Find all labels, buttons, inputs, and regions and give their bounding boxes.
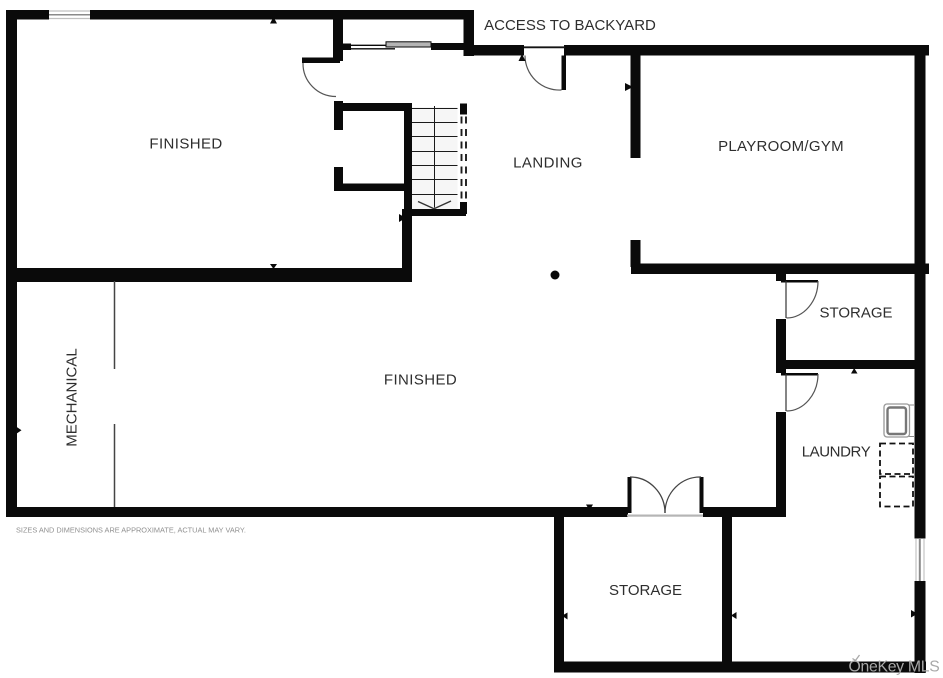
svg-text:ACCESS TO BACKYARD: ACCESS TO BACKYARD	[484, 17, 656, 34]
svg-text:STORAGE: STORAGE	[609, 582, 682, 599]
svg-text:FINISHED: FINISHED	[149, 136, 222, 153]
svg-text:OneKey MLS: OneKey MLS	[849, 659, 940, 676]
svg-text:PLAYROOM/GYM: PLAYROOM/GYM	[718, 138, 844, 155]
svg-text:LAUNDRY: LAUNDRY	[802, 444, 871, 461]
svg-text:SIZES AND DIMENSIONS ARE APPRO: SIZES AND DIMENSIONS ARE APPROXIMATE, AC…	[16, 526, 246, 535]
svg-text:STORAGE: STORAGE	[819, 305, 892, 322]
svg-text:LANDING: LANDING	[513, 155, 583, 172]
svg-text:FINISHED: FINISHED	[384, 372, 457, 389]
svg-text:MECHANICAL: MECHANICAL	[64, 348, 81, 446]
